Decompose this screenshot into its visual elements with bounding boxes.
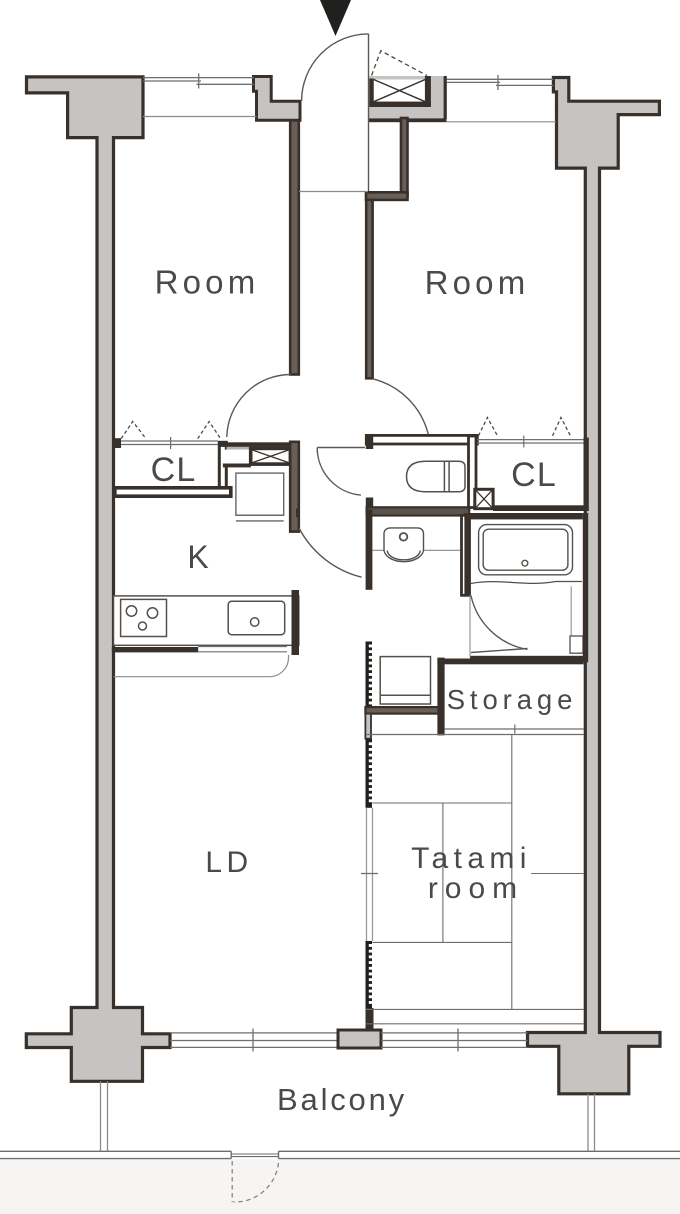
svg-text:LD: LD [205,846,252,879]
svg-text:Room: Room [155,264,260,301]
svg-text:CL: CL [151,451,197,489]
svg-text:CL: CL [511,456,557,494]
svg-text:Room: Room [425,264,530,301]
svg-text:room: room [428,872,524,905]
svg-text:Tatami: Tatami [411,842,532,875]
svg-text:Balcony: Balcony [277,1082,407,1117]
svg-text:Storage: Storage [447,684,578,715]
svg-text:K: K [187,539,208,575]
